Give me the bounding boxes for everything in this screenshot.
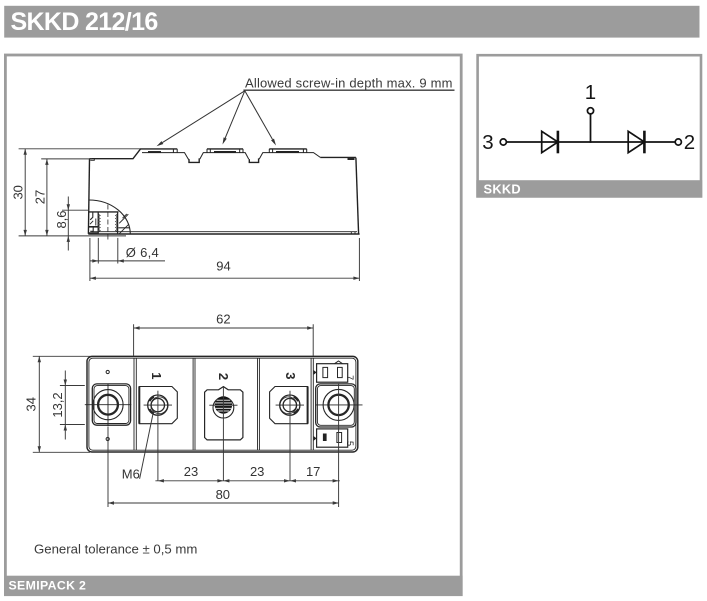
svg-text:5: 5 (345, 441, 355, 446)
svg-text:2: 2 (684, 131, 695, 154)
svg-text:M6: M6 (122, 467, 140, 482)
svg-text:94: 94 (216, 258, 230, 273)
svg-text:2: 2 (216, 373, 231, 380)
svg-text:1: 1 (585, 81, 596, 104)
svg-text:13,2: 13,2 (50, 392, 65, 417)
svg-text:7: 7 (345, 375, 355, 380)
svg-text:Allowed screw-in depth max. 9: Allowed screw-in depth max. 9 mm (245, 76, 453, 91)
svg-text:3: 3 (482, 131, 493, 154)
svg-text:SKKD 212/16: SKKD 212/16 (11, 8, 158, 36)
svg-text:3: 3 (283, 372, 298, 379)
svg-text:SKKD: SKKD (484, 182, 521, 197)
svg-text:30: 30 (11, 185, 26, 199)
svg-text:17: 17 (306, 464, 320, 479)
svg-text:80: 80 (216, 487, 230, 502)
svg-text:General tolerance ± 0,5 mm: General tolerance ± 0,5 mm (34, 542, 197, 557)
svg-text:27: 27 (33, 190, 48, 204)
svg-text:23: 23 (250, 464, 264, 479)
svg-text:1: 1 (149, 372, 164, 379)
svg-text:62: 62 (216, 312, 230, 327)
svg-text:SEMIPACK 2: SEMIPACK 2 (9, 579, 87, 593)
svg-text:23: 23 (184, 464, 198, 479)
svg-text:34: 34 (24, 397, 39, 411)
svg-text:Ø 6,4: Ø 6,4 (126, 245, 159, 260)
svg-text:8,6: 8,6 (54, 210, 69, 228)
